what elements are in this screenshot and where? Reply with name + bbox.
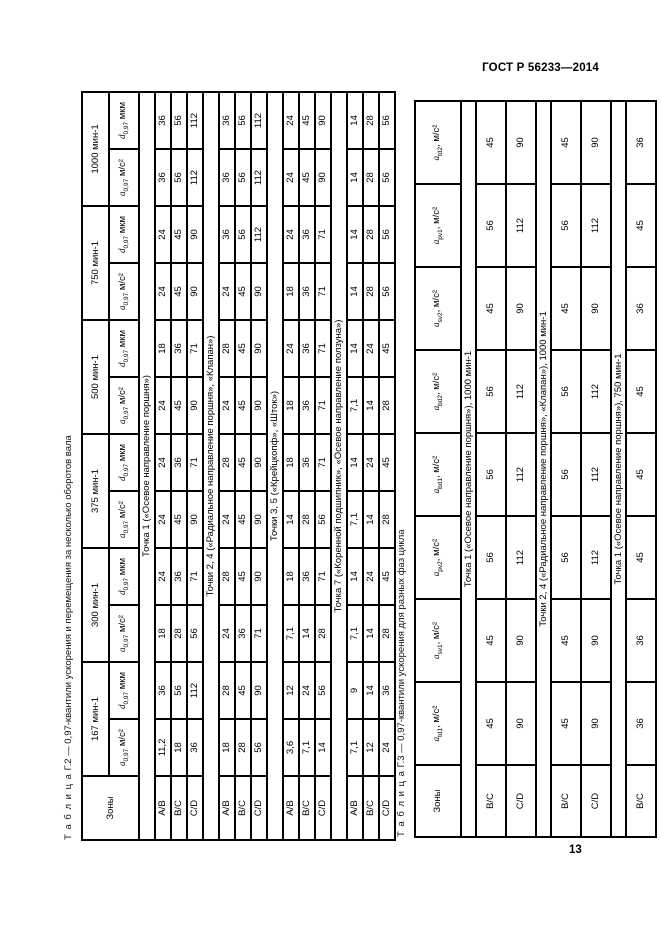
zones-header: Зоны — [415, 765, 461, 837]
value-cell: 45 — [171, 377, 187, 434]
zone-label: C/D — [187, 776, 203, 840]
value-cell: 14 — [363, 377, 379, 434]
measure-header: a0,97 м/с² — [109, 263, 139, 320]
zone-label: C/D — [315, 776, 331, 840]
value-cell: 24 — [283, 320, 299, 377]
measure-header: abd1, м/с² — [415, 433, 461, 516]
section-header: Точки 3, 5 («Крейцкопф», «Шток») — [267, 92, 283, 840]
value-cell: 36 — [626, 682, 656, 765]
value-cell: 45 — [171, 263, 187, 320]
value-cell: 24 — [363, 320, 379, 377]
zone-label: В/С — [171, 776, 187, 840]
zone-label: В/С — [363, 776, 379, 840]
value-cell: 18 — [283, 263, 299, 320]
value-cell: 56 — [379, 92, 395, 149]
value-cell: 90 — [315, 149, 331, 206]
zone-label: А/В — [219, 776, 235, 840]
value-cell: 112 — [251, 92, 267, 149]
value-cell: 90 — [251, 548, 267, 605]
value-cell: 24 — [155, 263, 171, 320]
zones-header: Зоны — [82, 776, 139, 840]
value-cell: 56 — [379, 206, 395, 263]
value-cell: 71 — [251, 605, 267, 662]
value-cell: 56 — [235, 92, 251, 149]
measure-header: abd2, м/с² — [415, 350, 461, 433]
speed-header: 1000 мин-1 — [82, 92, 109, 206]
value-cell: 112 — [581, 433, 611, 516]
value-cell: 45 — [235, 662, 251, 719]
value-cell: 36 — [299, 320, 315, 377]
value-cell: 28 — [315, 605, 331, 662]
value-cell: 90 — [581, 267, 611, 350]
value-cell: 45 — [171, 206, 187, 263]
measure-header: d0,97 мкм — [109, 92, 139, 149]
zone-label: В/С — [299, 776, 315, 840]
value-cell: 24 — [219, 263, 235, 320]
value-cell: 112 — [506, 350, 536, 433]
value-cell: 24 — [155, 377, 171, 434]
value-cell: 56 — [551, 516, 581, 599]
value-cell: 56 — [315, 491, 331, 548]
value-cell: 24 — [363, 434, 379, 491]
value-cell: 90 — [187, 491, 203, 548]
value-cell: 36 — [299, 548, 315, 605]
measure-header: a0,97 м/с² — [109, 491, 139, 548]
value-cell: 45 — [379, 434, 395, 491]
value-cell: 90 — [251, 263, 267, 320]
value-cell: 112 — [187, 149, 203, 206]
value-cell: 56 — [235, 206, 251, 263]
value-cell: 90 — [581, 101, 611, 184]
value-cell: 45 — [551, 267, 581, 350]
value-cell: 36 — [626, 267, 656, 350]
page-number: 13 — [569, 844, 582, 856]
value-cell: 71 — [187, 548, 203, 605]
value-cell: 24 — [299, 662, 315, 719]
value-cell: 71 — [315, 206, 331, 263]
zone-label: В/С — [626, 765, 656, 837]
value-cell: 90 — [251, 491, 267, 548]
value-cell: 14 — [347, 434, 363, 491]
value-cell: 45 — [551, 101, 581, 184]
value-cell: 28 — [379, 377, 395, 434]
measure-header: a0,97 м/с² — [109, 719, 139, 776]
speed-header: 300 мин-1 — [82, 548, 109, 662]
value-cell: 71 — [315, 548, 331, 605]
value-cell: 71 — [315, 434, 331, 491]
value-cell: 45 — [476, 682, 506, 765]
section-header: Точки 2, 4 («Радиальное направление порш… — [536, 101, 551, 837]
value-cell: 14 — [283, 491, 299, 548]
value-cell: 12 — [283, 662, 299, 719]
zone-label: C/D — [379, 776, 395, 840]
value-cell: 112 — [187, 92, 203, 149]
value-cell: 36 — [299, 377, 315, 434]
value-cell: 56 — [251, 719, 267, 776]
value-cell: 90 — [315, 92, 331, 149]
value-cell: 45 — [171, 491, 187, 548]
value-cell: 45 — [299, 149, 315, 206]
measure-header: apv2, м/с² — [415, 516, 461, 599]
table-g2-title: Т а б л и ц а Г.2 — 0,97-квантили ускоре… — [62, 91, 76, 840]
value-cell: 12 — [363, 719, 379, 776]
value-cell: 24 — [363, 548, 379, 605]
value-cell: 45 — [626, 516, 656, 599]
value-cell: 90 — [187, 263, 203, 320]
value-cell: 28 — [363, 92, 379, 149]
value-cell: 7,1 — [347, 491, 363, 548]
value-cell: 14 — [363, 662, 379, 719]
section-header: Точка 1 («Осевое направление поршня»), 7… — [611, 101, 626, 837]
value-cell: 3,6 — [283, 719, 299, 776]
measure-header: a0,97 м/с² — [109, 149, 139, 206]
value-cell: 112 — [187, 662, 203, 719]
value-cell: 36 — [155, 149, 171, 206]
value-cell: 18 — [219, 719, 235, 776]
value-cell: 90 — [506, 101, 536, 184]
value-cell: 90 — [251, 320, 267, 377]
value-cell: 90 — [581, 682, 611, 765]
value-cell: 90 — [506, 682, 536, 765]
value-cell: 24 — [155, 548, 171, 605]
value-cell: 36 — [299, 434, 315, 491]
zone-label: C/D — [581, 765, 611, 837]
measure-header: a0,97 м/с² — [109, 605, 139, 662]
value-cell: 11,2 — [155, 719, 171, 776]
value-cell: 56 — [379, 149, 395, 206]
zone-label: А/В — [347, 776, 363, 840]
speed-header: 167 мин-1 — [82, 662, 109, 776]
value-cell: 36 — [155, 662, 171, 719]
value-cell: 24 — [219, 377, 235, 434]
standard-number-header: ГОСТ Р 56233—2014 — [482, 62, 599, 74]
value-cell: 28 — [235, 719, 251, 776]
value-cell: 45 — [235, 548, 251, 605]
value-cell: 28 — [219, 434, 235, 491]
value-cell: 36 — [626, 101, 656, 184]
value-cell: 45 — [235, 434, 251, 491]
value-cell: 18 — [283, 548, 299, 605]
value-cell: 56 — [171, 662, 187, 719]
value-cell: 45 — [379, 320, 395, 377]
value-cell: 36 — [187, 719, 203, 776]
value-cell: 28 — [219, 662, 235, 719]
value-cell: 56 — [171, 92, 187, 149]
value-cell: 28 — [363, 263, 379, 320]
value-cell: 18 — [283, 434, 299, 491]
table-g3-title-rest: Г.3 — 0,97-квантили ускорения для разных… — [396, 529, 407, 770]
value-cell: 18 — [155, 605, 171, 662]
value-cell: 24 — [155, 434, 171, 491]
value-cell: 7,1 — [347, 605, 363, 662]
value-cell: 14 — [347, 320, 363, 377]
value-cell: 24 — [283, 149, 299, 206]
measure-header: d0,97 мкм — [109, 548, 139, 605]
value-cell: 9 — [347, 662, 363, 719]
value-cell: 112 — [506, 433, 536, 516]
value-cell: 45 — [626, 433, 656, 516]
table-g3-title: Т а б л и ц а Г.3 — 0,97-квантили ускоре… — [395, 93, 409, 837]
table-g2-title-rest: Г.2 — 0,97-квантили ускорения и перемеще… — [63, 435, 74, 773]
value-cell: 28 — [379, 605, 395, 662]
value-cell: 36 — [299, 206, 315, 263]
value-cell: 24 — [155, 206, 171, 263]
value-cell: 14 — [347, 206, 363, 263]
zone-label: А/В — [283, 776, 299, 840]
value-cell: 71 — [187, 434, 203, 491]
value-cell: 18 — [283, 377, 299, 434]
speed-header: 500 мин-1 — [82, 320, 109, 434]
zone-label: C/D — [251, 776, 267, 840]
measure-header: d0,97 мкм — [109, 662, 139, 719]
value-cell: 56 — [171, 149, 187, 206]
value-cell: 36 — [299, 263, 315, 320]
section-header: Точка 7 («Коренной подшипник», «Осевое н… — [331, 92, 347, 840]
value-cell: 45 — [299, 92, 315, 149]
value-cell: 36 — [219, 149, 235, 206]
measure-header: d0,97 мкм — [109, 206, 139, 263]
value-cell: 56 — [379, 263, 395, 320]
value-cell: 112 — [506, 184, 536, 267]
value-cell: 45 — [235, 320, 251, 377]
value-cell: 45 — [626, 350, 656, 433]
table-g3: Зоныatd1, м/с²asv1, м/с²apv2, м/с²abd1, … — [414, 100, 657, 838]
value-cell: 36 — [171, 320, 187, 377]
value-cell: 28 — [379, 491, 395, 548]
value-cell: 28 — [299, 491, 315, 548]
value-cell: 90 — [581, 599, 611, 682]
value-cell: 45 — [476, 101, 506, 184]
value-cell: 18 — [171, 719, 187, 776]
value-cell: 56 — [551, 184, 581, 267]
speed-header: 750 мин-1 — [82, 206, 109, 320]
value-cell: 7,1 — [283, 605, 299, 662]
value-cell: 14 — [347, 263, 363, 320]
value-cell: 90 — [251, 662, 267, 719]
value-cell: 90 — [251, 377, 267, 434]
value-cell: 36 — [219, 92, 235, 149]
zone-label: В/С — [235, 776, 251, 840]
value-cell: 36 — [626, 599, 656, 682]
measure-header: apv1, м/с² — [415, 184, 461, 267]
value-cell: 56 — [476, 184, 506, 267]
value-cell: 28 — [219, 320, 235, 377]
value-cell: 56 — [235, 149, 251, 206]
measure-header: d0,97 мкм — [109, 434, 139, 491]
value-cell: 56 — [551, 350, 581, 433]
value-cell: 56 — [315, 662, 331, 719]
value-cell: 45 — [626, 184, 656, 267]
zone-label: А/В — [155, 776, 171, 840]
value-cell: 28 — [171, 605, 187, 662]
table-g3-title-word: Т а б л и ц а — [396, 770, 407, 837]
value-cell: 112 — [251, 206, 267, 263]
measure-header: asv2, м/с² — [415, 267, 461, 350]
value-cell: 112 — [506, 516, 536, 599]
document-page: ГОСТ Р 56233—2014 Т а б л и ц а Г.2 — 0,… — [0, 0, 661, 935]
value-cell: 14 — [347, 92, 363, 149]
measure-header: atd2, м/с² — [415, 101, 461, 184]
value-cell: 56 — [476, 350, 506, 433]
value-cell: 45 — [235, 377, 251, 434]
table-g2: Зоны167 мин-1300 мин-1375 мин-1500 мин-1… — [81, 91, 396, 841]
value-cell: 36 — [171, 548, 187, 605]
value-cell: 90 — [506, 599, 536, 682]
value-cell: 36 — [379, 662, 395, 719]
value-cell: 45 — [379, 548, 395, 605]
value-cell: 56 — [476, 516, 506, 599]
value-cell: 24 — [283, 206, 299, 263]
speed-header: 375 мин-1 — [82, 434, 109, 548]
value-cell: 45 — [235, 491, 251, 548]
value-cell: 14 — [315, 719, 331, 776]
section-header: Точка 1 («Осевое направление поршня») — [139, 92, 155, 840]
value-cell: 112 — [251, 149, 267, 206]
value-cell: 71 — [315, 377, 331, 434]
value-cell: 36 — [219, 206, 235, 263]
measure-header: a0,97 м/с² — [109, 377, 139, 434]
section-header: Точки 2, 4 («Радиальное направление порш… — [203, 92, 219, 840]
value-cell: 36 — [171, 434, 187, 491]
value-cell: 45 — [476, 599, 506, 682]
value-cell: 71 — [187, 320, 203, 377]
zone-label: В/С — [476, 765, 506, 837]
value-cell: 28 — [363, 206, 379, 263]
value-cell: 112 — [581, 184, 611, 267]
value-cell: 71 — [315, 320, 331, 377]
value-cell: 24 — [219, 605, 235, 662]
value-cell: 7,1 — [347, 719, 363, 776]
value-cell: 56 — [476, 433, 506, 516]
value-cell: 24 — [379, 719, 395, 776]
value-cell: 56 — [187, 605, 203, 662]
value-cell: 45 — [551, 682, 581, 765]
value-cell: 112 — [581, 350, 611, 433]
value-cell: 14 — [347, 149, 363, 206]
value-cell: 28 — [219, 548, 235, 605]
value-cell: 24 — [219, 491, 235, 548]
value-cell: 90 — [251, 434, 267, 491]
value-cell: 7,1 — [299, 719, 315, 776]
value-cell: 36 — [235, 605, 251, 662]
value-cell: 14 — [363, 605, 379, 662]
zone-label: В/С — [551, 765, 581, 837]
value-cell: 90 — [187, 377, 203, 434]
value-cell: 28 — [363, 149, 379, 206]
value-cell: 112 — [581, 516, 611, 599]
value-cell: 18 — [155, 320, 171, 377]
section-header: Точка 1 («Осевое направление поршня»), 1… — [461, 101, 476, 837]
table-g3-rotated-block: Т а б л и ц а Г.3 — 0,97-квантили ускоре… — [395, 93, 657, 838]
value-cell: 45 — [235, 263, 251, 320]
value-cell: 14 — [347, 548, 363, 605]
measure-header: d0,97 мкм — [109, 320, 139, 377]
value-cell: 45 — [476, 267, 506, 350]
zone-label: C/D — [506, 765, 536, 837]
table-g2-title-word: Т а б л и ц а — [63, 773, 74, 840]
measure-header: asv1, м/с² — [415, 599, 461, 682]
value-cell: 56 — [551, 433, 581, 516]
value-cell: 14 — [299, 605, 315, 662]
value-cell: 24 — [283, 92, 299, 149]
value-cell: 45 — [551, 599, 581, 682]
value-cell: 90 — [506, 267, 536, 350]
value-cell: 14 — [363, 491, 379, 548]
value-cell: 36 — [155, 92, 171, 149]
table-g2-rotated-block: Т а б л и ц а Г.2 — 0,97-квантили ускоре… — [62, 91, 396, 841]
value-cell: 24 — [155, 491, 171, 548]
value-cell: 71 — [315, 263, 331, 320]
value-cell: 7,1 — [347, 377, 363, 434]
value-cell: 90 — [187, 206, 203, 263]
measure-header: atd1, м/с² — [415, 682, 461, 765]
